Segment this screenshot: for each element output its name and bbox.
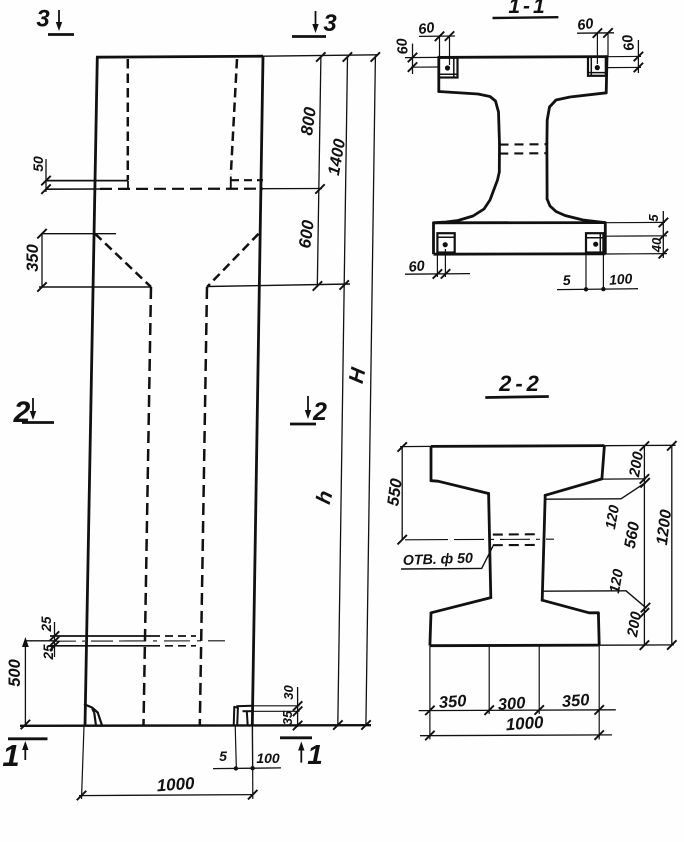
svg-text:5: 5 xyxy=(646,214,661,222)
svg-text:500: 500 xyxy=(6,658,24,686)
svg-text:H: H xyxy=(345,365,371,385)
svg-text:25: 25 xyxy=(41,644,56,661)
svg-text:2-2: 2-2 xyxy=(498,371,543,396)
svg-text:ОТВ. ф 50: ОТВ. ф 50 xyxy=(403,551,474,569)
svg-text:60: 60 xyxy=(408,258,425,275)
svg-text:5: 5 xyxy=(562,272,571,289)
svg-text:60: 60 xyxy=(620,33,639,52)
svg-text:1: 1 xyxy=(307,739,323,770)
svg-text:560: 560 xyxy=(622,521,643,550)
svg-text:100: 100 xyxy=(608,270,633,288)
svg-text:35: 35 xyxy=(280,710,295,725)
svg-text:100: 100 xyxy=(256,750,280,766)
svg-text:3: 3 xyxy=(323,10,337,37)
svg-text:350: 350 xyxy=(24,243,42,271)
svg-text:600: 600 xyxy=(295,218,318,249)
svg-text:60: 60 xyxy=(576,16,594,34)
svg-text:300: 300 xyxy=(497,694,527,714)
svg-text:1000: 1000 xyxy=(505,713,545,735)
svg-text:h: h xyxy=(312,488,338,506)
svg-text:2: 2 xyxy=(13,396,31,429)
svg-text:50: 50 xyxy=(30,156,46,172)
svg-text:350: 350 xyxy=(561,691,591,711)
svg-text:5: 5 xyxy=(219,748,227,764)
svg-text:1-1: 1-1 xyxy=(508,0,547,18)
svg-text:1000: 1000 xyxy=(156,774,196,796)
svg-text:60: 60 xyxy=(417,20,435,38)
svg-text:40: 40 xyxy=(649,237,664,253)
svg-text:60: 60 xyxy=(394,38,411,55)
svg-text:120: 120 xyxy=(603,504,623,531)
svg-text:3: 3 xyxy=(36,6,50,33)
svg-text:1: 1 xyxy=(2,738,19,773)
svg-text:350: 350 xyxy=(438,692,468,712)
svg-text:25: 25 xyxy=(39,616,54,633)
svg-text:2: 2 xyxy=(312,398,327,426)
svg-text:200: 200 xyxy=(624,610,645,639)
svg-text:800: 800 xyxy=(297,105,320,136)
svg-text:30: 30 xyxy=(281,685,296,700)
